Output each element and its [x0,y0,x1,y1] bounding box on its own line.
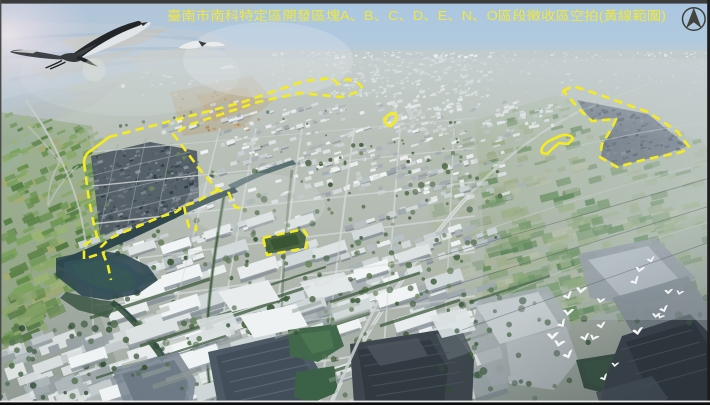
svg-text:臺南市南科特定區開發區塊A、B、C、D、E、N、O區段徵收區: 臺南市南科特定區開發區塊A、B、C、D、E、N、O區段徵收區空拍(黃線範圍) [167,8,666,23]
